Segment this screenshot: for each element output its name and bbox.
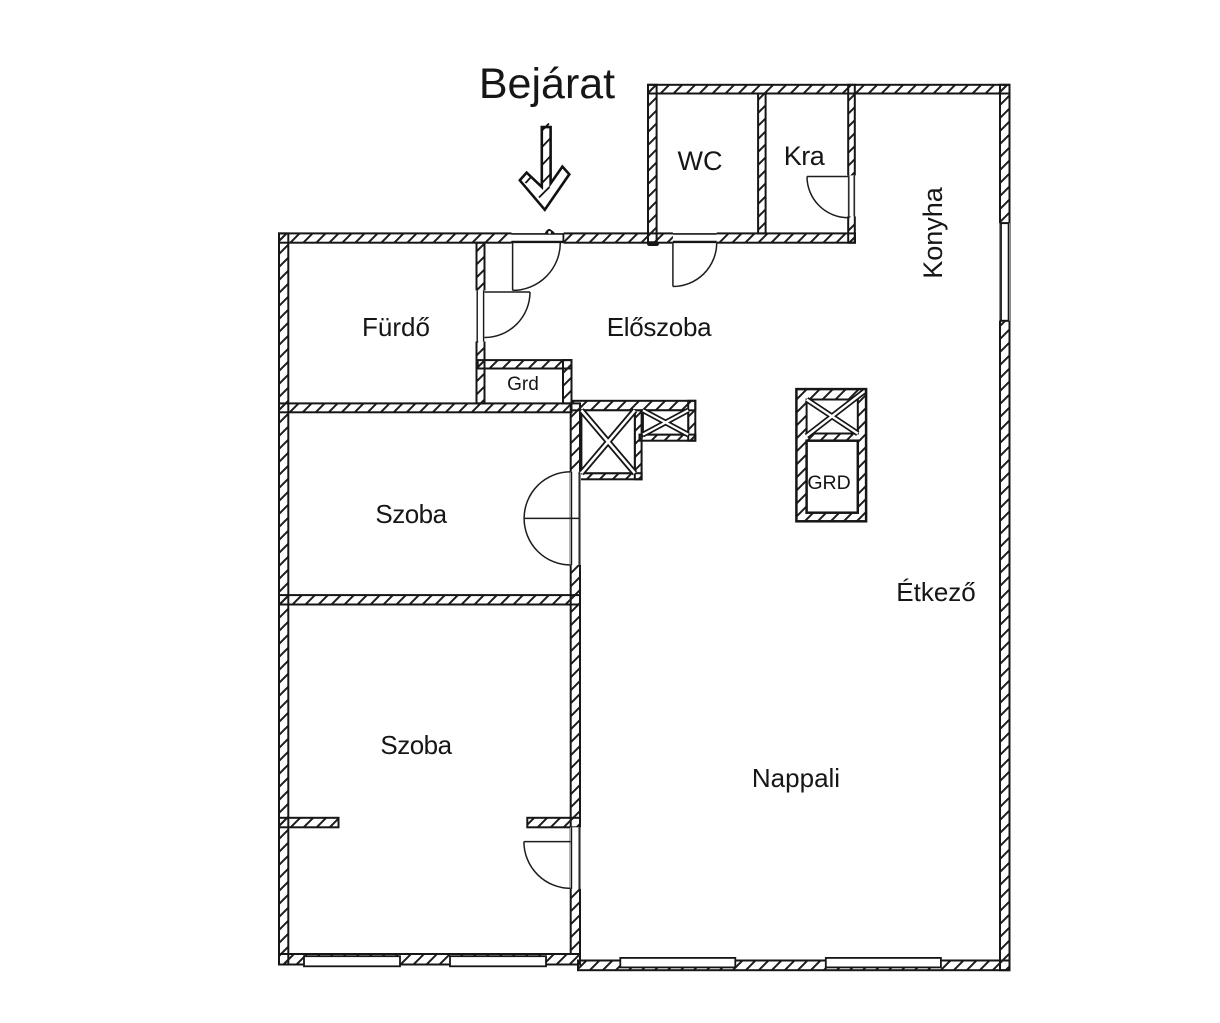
svg-text:Étkező: Étkező bbox=[896, 577, 976, 607]
svg-text:Nappali: Nappali bbox=[752, 763, 840, 793]
svg-text:Szoba: Szoba bbox=[380, 730, 452, 760]
svg-text:Előszoba: Előszoba bbox=[607, 312, 712, 342]
svg-text:Kra: Kra bbox=[784, 141, 826, 171]
svg-text:Grd: Grd bbox=[507, 374, 539, 395]
svg-text:Szoba: Szoba bbox=[375, 499, 447, 529]
svg-text:Konyha: Konyha bbox=[918, 186, 948, 279]
svg-text:GRD: GRD bbox=[807, 472, 850, 494]
svg-text:Bejárat: Bejárat bbox=[479, 60, 615, 108]
svg-text:Fürdő: Fürdő bbox=[362, 312, 430, 342]
svg-text:WC: WC bbox=[678, 146, 723, 176]
